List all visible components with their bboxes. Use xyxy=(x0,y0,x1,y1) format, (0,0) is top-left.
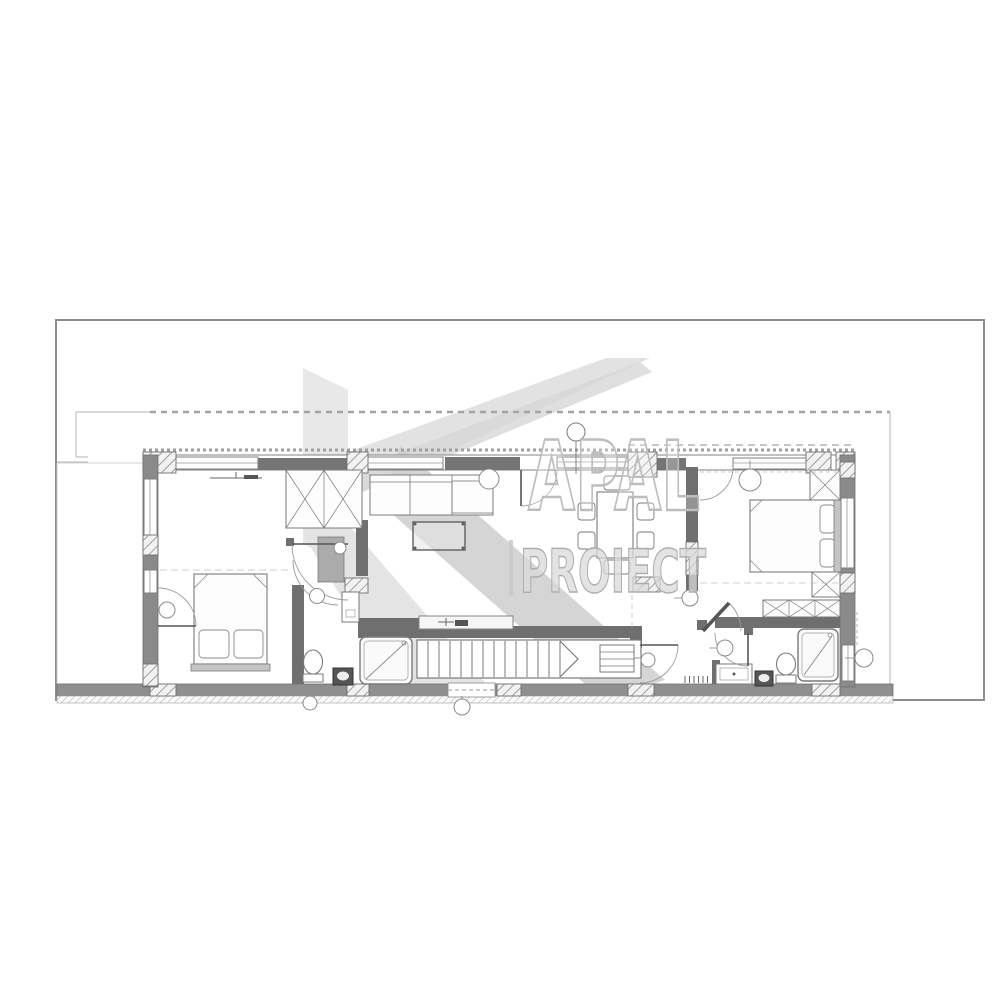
bedroom-left xyxy=(160,470,362,671)
corner-sofa xyxy=(370,475,493,515)
pillow xyxy=(820,539,835,567)
pillow xyxy=(199,630,229,658)
pillow xyxy=(820,505,835,533)
sink-icon xyxy=(455,620,468,626)
window-left-2 xyxy=(144,570,157,593)
watermark-brand-top: APAL xyxy=(528,421,700,533)
watermark-brand-bottom: PROIECT xyxy=(520,537,706,607)
vanity-right xyxy=(716,664,752,684)
tall-cabinet xyxy=(342,592,359,622)
right-wall xyxy=(840,455,855,687)
pillow xyxy=(234,630,263,658)
ceiling-fan-icon xyxy=(210,472,262,479)
watermark-text: APAL PROIECT xyxy=(509,421,706,607)
kitchen-counter xyxy=(419,616,513,629)
bathroom-right xyxy=(685,629,838,686)
wardrobe-left xyxy=(286,470,362,528)
headboard xyxy=(191,664,270,671)
window-right-1 xyxy=(841,498,854,568)
floor-plan-sheet: APAL PROIECT xyxy=(0,0,1000,1000)
toilet-tank xyxy=(776,675,796,683)
toilet-tank xyxy=(303,674,323,682)
left-wall xyxy=(143,455,158,687)
watermark-divider-bar xyxy=(509,540,513,596)
floor-plan-drawing: APAL PROIECT xyxy=(0,0,1000,1000)
terrace-left-outline xyxy=(57,463,143,684)
toilet-right xyxy=(777,653,796,675)
toilet-left xyxy=(304,650,323,674)
radiator-ticks-icon xyxy=(685,676,708,683)
coffee-table xyxy=(413,522,465,550)
window-left-1 xyxy=(144,479,157,537)
headboard xyxy=(834,500,841,572)
